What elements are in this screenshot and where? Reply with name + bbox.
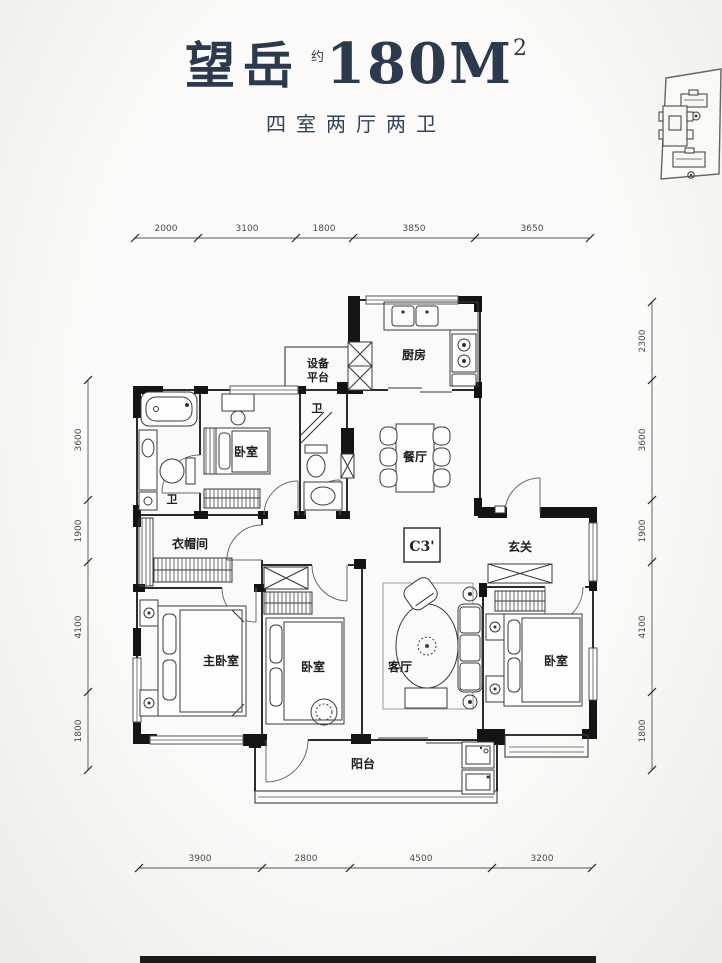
equipment-platform-label2: 平台 — [307, 370, 329, 384]
living-room-label: 客厅 — [387, 659, 412, 674]
floorplan-drawing: 2000 3100 1800 3850 3650 3900 2800 4500 … — [0, 0, 722, 963]
bath-top-fixtures — [300, 412, 342, 510]
dim-label: 3850 — [403, 224, 426, 234]
dim-label: 1900 — [74, 519, 84, 542]
bedroom-top-door — [264, 481, 298, 515]
balcony-label: 阳台 — [351, 756, 375, 771]
balcony-fixtures — [462, 742, 494, 794]
cloakroom-furniture — [139, 518, 232, 586]
living-furniture — [383, 575, 482, 709]
washbasin — [304, 482, 342, 510]
balcony-door — [266, 740, 308, 782]
bedroom-top-label: 卧室 — [234, 444, 258, 459]
dim-label: 3900 — [189, 854, 212, 864]
toilet — [305, 445, 327, 477]
kitchen-fixtures — [384, 302, 478, 386]
dim-label: 3200 — [531, 854, 554, 864]
stove — [452, 334, 476, 372]
balcony-railing — [255, 791, 497, 803]
dimension-line-top: 2000 3100 1800 3850 3650 — [131, 224, 594, 242]
bedroom-middle-furniture — [264, 592, 344, 725]
equipment-platform-label: 设备 — [307, 356, 330, 370]
dim-label: 3650 — [521, 224, 544, 234]
bath-left-label: 卫 — [167, 493, 178, 506]
kitchen-sliding-door — [388, 388, 452, 392]
bay-window — [505, 735, 588, 757]
armchair — [401, 575, 440, 614]
dim-label: 4100 — [74, 615, 84, 638]
tv-table — [405, 688, 447, 708]
toilet — [160, 458, 195, 484]
entry-door — [495, 478, 540, 513]
dim-label: 1800 — [74, 719, 84, 742]
laundry-sink — [462, 742, 494, 768]
washing-machine — [462, 770, 494, 794]
dim-label: 3100 — [236, 224, 259, 234]
dim-label: 4100 — [638, 615, 648, 638]
dimension-line-right: 2300 3600 1900 4100 1800 — [638, 298, 656, 774]
dim-label: 4500 — [410, 854, 433, 864]
dim-label: 3600 — [638, 428, 648, 451]
master-bedroom-label: 主卧室 — [203, 653, 239, 668]
dim-label: 2800 — [295, 854, 318, 864]
dim-label: 2000 — [155, 224, 178, 234]
shower — [300, 412, 332, 444]
dim-label: 1800 — [313, 224, 336, 234]
dimension-line-bottom: 3900 2800 4500 3200 — [135, 854, 596, 872]
floorplan-page: 望岳约180M2 四室两厅两卫 — [0, 0, 722, 963]
kitchen-label: 厨房 — [402, 347, 426, 362]
entry-furniture — [488, 564, 552, 583]
dim-label: 2300 — [638, 329, 648, 352]
sofa — [458, 604, 482, 692]
cloakroom-door — [227, 525, 262, 560]
bath-top-label: 卫 — [312, 402, 323, 415]
dim-label: 1900 — [638, 519, 648, 542]
dim-label: 1800 — [638, 719, 648, 742]
bedroom-right-label: 卧室 — [544, 653, 568, 668]
entry-label: 玄关 — [508, 539, 532, 554]
kitchen-sink — [392, 306, 414, 326]
unit-label-box: C3' — [404, 528, 440, 562]
unit-label: C3' — [409, 539, 434, 555]
bedroom-right-furniture — [486, 591, 582, 706]
bottom-crop-bar — [140, 956, 596, 963]
cloakroom-label: 衣帽间 — [172, 536, 208, 551]
bedroom-middle-label: 卧室 — [301, 659, 325, 674]
dim-label: 3600 — [74, 428, 84, 451]
dining-label: 餐厅 — [403, 449, 427, 464]
dimension-line-left: 3600 1900 4100 1800 — [74, 376, 92, 774]
desk — [222, 394, 254, 411]
chair — [231, 411, 245, 425]
bedroom-middle-door — [312, 565, 347, 601]
